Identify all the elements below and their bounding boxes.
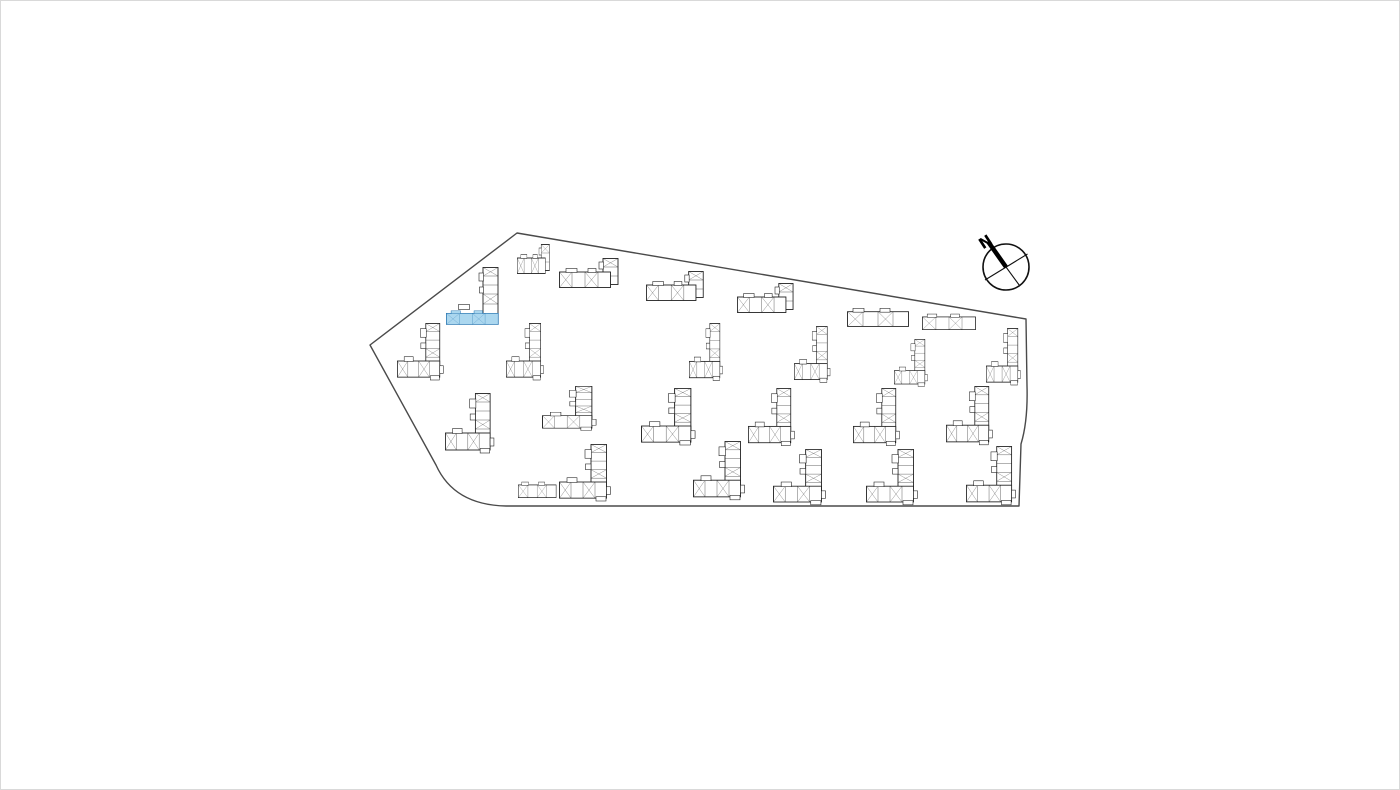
building-b03[interactable] (646, 272, 703, 301)
building-b14[interactable] (894, 339, 927, 386)
building-b21[interactable] (946, 386, 992, 444)
building-b15[interactable] (986, 328, 1020, 385)
compass-cross-line-icon (985, 254, 1028, 280)
building-b25[interactable] (774, 449, 826, 504)
building-b06[interactable] (922, 314, 975, 330)
compass: N (975, 231, 1029, 290)
building-b11[interactable] (506, 323, 543, 380)
building-b24[interactable] (694, 441, 745, 499)
building-b17[interactable] (543, 386, 597, 430)
site-plan-page: N (0, 0, 1400, 790)
building-b08[interactable] (459, 305, 470, 310)
building-b20[interactable] (853, 388, 899, 445)
building-b19[interactable] (748, 388, 794, 445)
building-b23[interactable] (560, 444, 611, 501)
buildings-layer (397, 245, 1020, 505)
building-b07[interactable] (479, 268, 498, 315)
building-b10[interactable] (397, 323, 443, 380)
building-b16[interactable] (445, 394, 493, 454)
building-b18[interactable] (642, 388, 696, 445)
building-b02[interactable] (560, 259, 619, 288)
building-b26[interactable] (867, 449, 918, 504)
site-plan-svg: N (1, 1, 1400, 790)
building-b05[interactable] (848, 308, 909, 326)
building-b22[interactable] (518, 482, 556, 498)
building-b12[interactable] (689, 323, 722, 380)
building-b27[interactable] (966, 446, 1015, 504)
building-b01[interactable] (517, 245, 549, 274)
building-b13[interactable] (794, 326, 830, 382)
building-b04[interactable] (737, 284, 793, 313)
